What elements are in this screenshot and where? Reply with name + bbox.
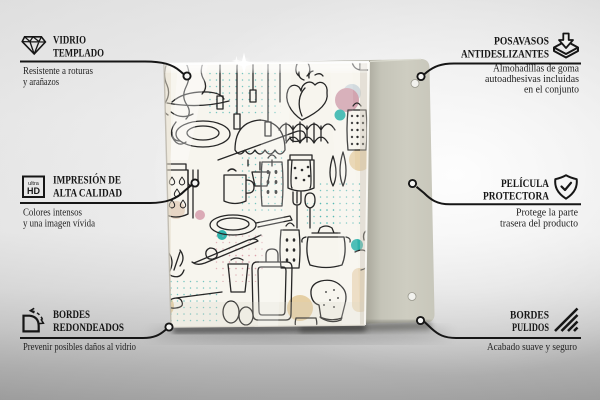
svg-text:en el conjunto: en el conjunto xyxy=(524,84,579,96)
svg-text:POSAVASOS: POSAVASOS xyxy=(494,34,549,48)
svg-text:ANTIDESLIZANTES: ANTIDESLIZANTES xyxy=(461,47,549,61)
svg-text:HD: HD xyxy=(27,186,40,196)
svg-text:y arañazos: y arañazos xyxy=(23,76,59,88)
svg-text:trasera del producto: trasera del producto xyxy=(500,217,578,229)
svg-text:VIDRIO: VIDRIO xyxy=(53,33,86,47)
svg-text:TEMPLADO: TEMPLADO xyxy=(53,46,104,60)
svg-text:PROTECTORA: PROTECTORA xyxy=(483,189,549,203)
svg-text:REDONDEADOS: REDONDEADOS xyxy=(53,320,124,334)
svg-text:BORDES: BORDES xyxy=(53,307,90,321)
svg-text:Acabado suave y seguro: Acabado suave y seguro xyxy=(487,341,577,353)
svg-text:PULIDOS: PULIDOS xyxy=(512,320,549,334)
svg-text:Prevenir posibles daños al vid: Prevenir posibles daños al vidrio xyxy=(23,341,136,353)
svg-text:IMPRESIÓN DE: IMPRESIÓN DE xyxy=(53,173,121,187)
svg-text:ALTA CALIDAD: ALTA CALIDAD xyxy=(53,186,122,200)
svg-text:y una imagen vívida: y una imagen vívida xyxy=(23,218,95,230)
